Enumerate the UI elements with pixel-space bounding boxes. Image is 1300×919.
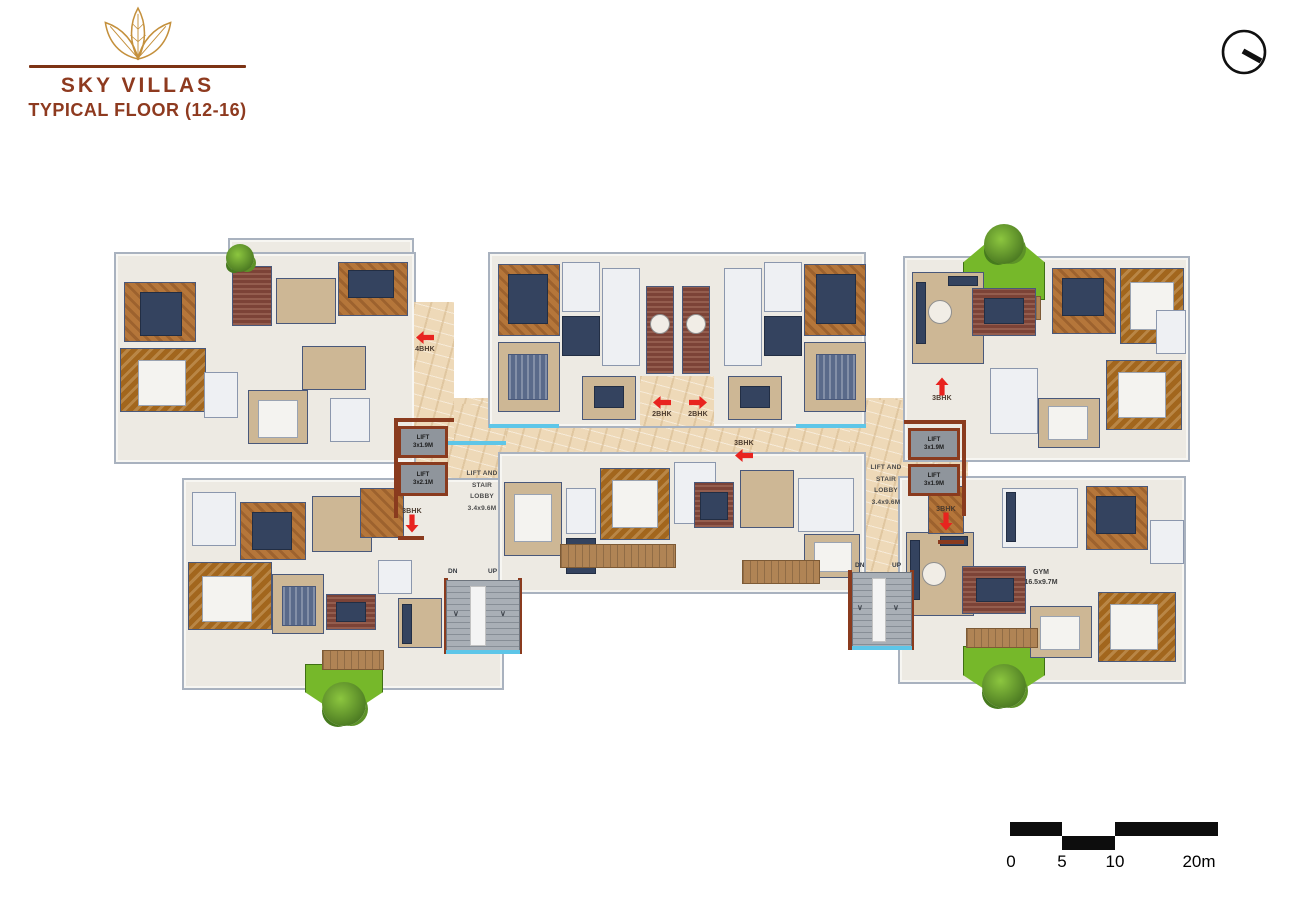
room-block bbox=[700, 492, 728, 520]
room-block bbox=[1048, 406, 1088, 440]
brand-block: SKY VILLAS TYPICAL FLOOR (12-16) bbox=[15, 6, 260, 121]
room-block bbox=[742, 560, 820, 584]
arrow-left-icon bbox=[653, 396, 671, 409]
arrow-left-icon bbox=[735, 449, 753, 462]
stair-dn-label: DN bbox=[855, 562, 864, 569]
floor-plan: ∨ ∨ DN UP ∨ ∨ DN UP LIFT 3x1.9M LIFT 3x2… bbox=[0, 0, 1300, 919]
room-block bbox=[1062, 278, 1104, 316]
arrow-down-icon bbox=[940, 513, 953, 531]
room-block bbox=[282, 586, 316, 626]
scale-tick-20: 20m bbox=[1178, 852, 1220, 872]
room-block bbox=[348, 270, 394, 298]
stair-up-label: UP bbox=[892, 562, 901, 569]
room-block bbox=[816, 274, 856, 324]
arrow-up-icon bbox=[936, 378, 949, 396]
room-block bbox=[138, 360, 186, 406]
room-block bbox=[796, 424, 866, 428]
room-block bbox=[560, 544, 676, 568]
room-block bbox=[232, 266, 272, 326]
stair-direction-chevron: ∨ bbox=[500, 610, 506, 618]
room-block bbox=[276, 278, 336, 324]
stair-landing-left bbox=[470, 586, 486, 646]
right-lobby-label: LIFT AND STAIR LOBBY 3.4x9.6M bbox=[854, 462, 918, 509]
room-block bbox=[1040, 616, 1080, 650]
room-block bbox=[330, 398, 370, 442]
room-block bbox=[764, 316, 802, 356]
brand-divider bbox=[29, 65, 246, 68]
scale-segment bbox=[1115, 822, 1218, 836]
glass-rail bbox=[446, 650, 520, 654]
gym-label: GYM 16.5x9.7M bbox=[1008, 568, 1074, 588]
unit-marker-3bhk-top-right: 3BHK bbox=[920, 380, 964, 402]
room-block bbox=[740, 386, 770, 408]
room-block bbox=[602, 268, 640, 366]
room-block bbox=[594, 386, 624, 408]
room-block bbox=[508, 354, 548, 400]
lotus-logo-icon bbox=[90, 6, 186, 64]
room-block bbox=[686, 314, 706, 334]
room-block bbox=[562, 262, 600, 312]
room-block bbox=[378, 560, 412, 594]
scale-bar: 0 5 10 20m bbox=[1008, 822, 1220, 874]
room-block bbox=[402, 604, 412, 644]
room-block bbox=[816, 354, 856, 400]
floor-subtitle: TYPICAL FLOOR (12-16) bbox=[15, 100, 260, 121]
room-block bbox=[1156, 310, 1186, 354]
tree-icon bbox=[226, 244, 254, 272]
lift-left-1: LIFT 3x1.9M bbox=[398, 426, 448, 458]
room-block bbox=[948, 276, 978, 286]
room-block bbox=[192, 492, 236, 546]
room-block bbox=[1110, 604, 1158, 650]
wall-segment bbox=[904, 420, 966, 424]
stair-landing-right bbox=[872, 578, 886, 642]
scale-segment bbox=[1062, 836, 1115, 850]
room-block bbox=[650, 314, 670, 334]
room-block bbox=[916, 282, 926, 344]
room-block bbox=[724, 268, 762, 366]
stair-direction-chevron: ∨ bbox=[857, 604, 863, 612]
room-block bbox=[508, 274, 548, 324]
room-block bbox=[984, 298, 1024, 324]
unit-marker-4bhk: 4BHK bbox=[403, 331, 447, 353]
lift-right-1: LIFT 3x1.9M bbox=[908, 428, 960, 460]
scale-tick-5: 5 bbox=[1055, 852, 1069, 872]
room-block bbox=[489, 424, 559, 428]
room-block bbox=[322, 650, 384, 670]
room-block bbox=[204, 372, 238, 418]
room-block bbox=[514, 494, 552, 542]
room-block bbox=[764, 262, 802, 312]
room-block bbox=[1006, 492, 1016, 542]
tree-icon bbox=[984, 224, 1024, 264]
lift-left-2: LIFT 3x2.1M bbox=[398, 462, 448, 496]
room-block bbox=[922, 562, 946, 586]
arrow-right-icon bbox=[689, 396, 707, 409]
room-block bbox=[140, 292, 182, 336]
room-block bbox=[302, 346, 366, 390]
unit-marker-3bhk-bottom-left: 3BHK bbox=[390, 508, 434, 530]
room-block bbox=[258, 400, 298, 438]
room-block bbox=[1150, 520, 1184, 564]
scale-tick-10: 10 bbox=[1104, 852, 1126, 872]
stair-up-label: UP bbox=[488, 568, 497, 575]
room-block bbox=[612, 480, 658, 528]
scale-tick-0: 0 bbox=[1005, 852, 1017, 872]
glass-rail bbox=[852, 646, 912, 650]
arrow-down-icon bbox=[406, 515, 419, 533]
unit-marker-3bhk-center: 3BHK bbox=[722, 440, 766, 462]
room-block bbox=[252, 512, 292, 550]
room-block bbox=[1096, 496, 1136, 534]
arrow-left-icon bbox=[416, 331, 434, 344]
wall-segment bbox=[962, 424, 966, 516]
north-indicator-icon bbox=[1218, 26, 1272, 85]
tree-icon bbox=[322, 682, 366, 726]
project-title: SKY VILLAS bbox=[15, 74, 260, 98]
room-block bbox=[966, 628, 1038, 648]
room-block bbox=[798, 478, 854, 532]
room-block bbox=[928, 300, 952, 324]
room-block bbox=[740, 470, 794, 528]
left-lobby-label: LIFT AND STAIR LOBBY 3.4x9.6M bbox=[446, 468, 518, 515]
unit-marker-3bhk-bottom-right: 3BHK bbox=[924, 506, 968, 528]
stair-direction-chevron: ∨ bbox=[893, 604, 899, 612]
wall-segment bbox=[394, 418, 454, 422]
room-block bbox=[202, 576, 252, 622]
room-block bbox=[336, 602, 366, 622]
room-block bbox=[1118, 372, 1166, 418]
tree-icon bbox=[982, 664, 1026, 708]
room-block bbox=[990, 368, 1038, 434]
wall-segment bbox=[938, 540, 964, 544]
wall-segment bbox=[398, 536, 424, 540]
stair-direction-chevron: ∨ bbox=[453, 610, 459, 618]
unit-marker-2bhk-right: 2BHK bbox=[676, 396, 720, 418]
scale-segment bbox=[1010, 822, 1062, 836]
room-block bbox=[566, 488, 596, 534]
room-block bbox=[562, 316, 600, 356]
stair-dn-label: DN bbox=[448, 568, 457, 575]
